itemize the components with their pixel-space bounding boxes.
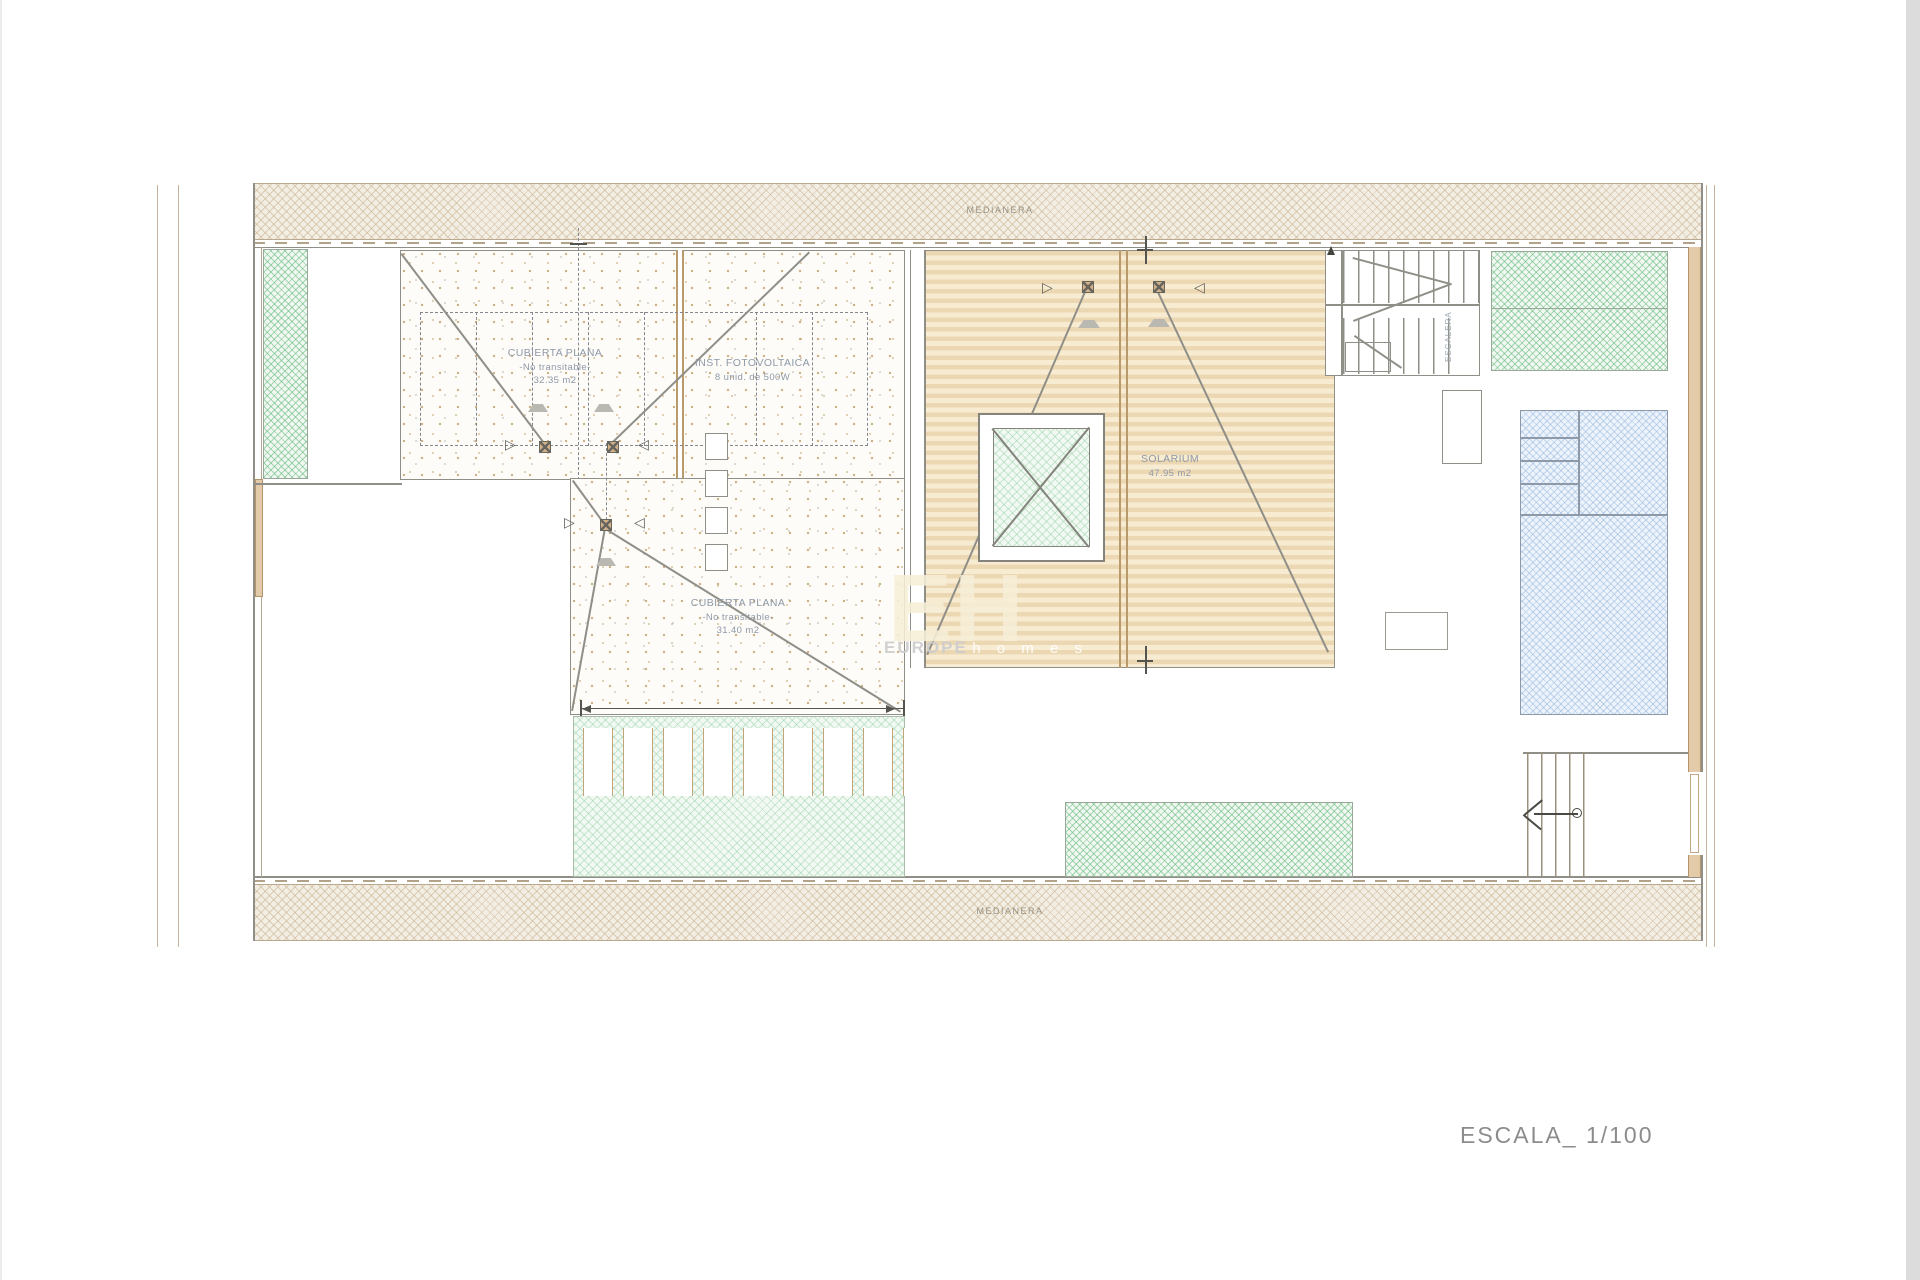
roof-axis-line [606, 443, 607, 530]
flat-roof-1-area: 32.35 m2 [455, 374, 655, 387]
roof-drain [607, 441, 619, 453]
planting-area-topright [1491, 251, 1668, 371]
top-wall-joint-dashes [253, 242, 1702, 244]
axis-tick [570, 243, 587, 245]
axis-tick [1137, 660, 1153, 662]
pv-subtitle: 8 unid. de 500W [660, 371, 845, 384]
solarium-area: 47.95 m2 [1095, 467, 1245, 480]
right-frame-line [1706, 185, 1707, 947]
pool-step-divider [1578, 410, 1580, 515]
planting-divider-line [1491, 308, 1668, 309]
rooftop-vent-box [705, 507, 728, 534]
solarium-label: SOLARIUM 47.95 m2 [1095, 452, 1245, 480]
stair-landing-line [1325, 304, 1480, 306]
rooftop-vent-box [705, 544, 728, 571]
stair-landing-box [1345, 342, 1391, 372]
watermark: EH EUROPE h o m e s [882, 566, 1102, 676]
scale-label: ESCALA_ 1/100 [1460, 1122, 1654, 1149]
slope-arrow-icon: ▷ [1042, 281, 1053, 295]
left-planting-strip [263, 249, 308, 479]
pv-label: INST. FOTOVOLTAICA 8 unid. de 500W [660, 356, 845, 384]
flat-roof-1-label: CUBIERTA PLANA -No transitable- 32.35 m2 [455, 346, 655, 387]
slope-arrow-icon: ▷ [564, 516, 575, 530]
bottom-wall-joint-dashes [253, 880, 1702, 882]
roof-drain [539, 441, 551, 453]
bottom-boundary-line [253, 876, 1702, 878]
flat-roof-1-subtitle: -No transitable- [455, 361, 655, 374]
watermark-brand: EUROPE [884, 638, 968, 657]
left-frame-line [178, 185, 179, 947]
stair-side-box [1442, 390, 1482, 464]
slope-arrow-icon: ◁ [634, 516, 645, 530]
pool-step-line [1520, 483, 1578, 485]
stair-treads [1343, 251, 1480, 303]
flat-roof-2-title: CUBIERTA PLANA [652, 596, 824, 611]
axis-tick [1137, 249, 1153, 251]
left-interior-wall-line [255, 483, 402, 485]
stair-flight-line [1341, 250, 1343, 376]
dimension-arrow-icon [582, 705, 591, 713]
left-frame-line [157, 185, 158, 947]
dimension-line [580, 708, 905, 709]
deck-anchor [1153, 281, 1165, 293]
dimension-tick [903, 700, 905, 716]
left-wall-stub [255, 479, 263, 597]
pool-step-line [1520, 437, 1578, 439]
flat-roof-2-label: CUBIERTA PLANA -No transitable- 31.40 m2 [652, 596, 824, 637]
pool-step-line [1520, 460, 1578, 462]
roof-drain [600, 519, 612, 531]
planting-area-bottom [1065, 802, 1353, 877]
right-frame-line [1714, 185, 1715, 947]
lower-stair-arrow-origin [1572, 808, 1582, 818]
flat-roof-2-subtitle: -No transitable- [652, 611, 824, 624]
sheet-left-edge [0, 0, 2, 1280]
floor-plan-sheet: MEDIANERA MEDIANERA ▷ ◁ CUBIERTA PLANA -… [0, 0, 1920, 1280]
party-wall-top-label: MEDIANERA [300, 205, 1700, 215]
dimension-arrow-icon [886, 705, 895, 713]
pergola-slats [583, 728, 905, 796]
slope-arrow-icon: ◁ [638, 438, 649, 452]
solarium-title: SOLARIUM [1095, 452, 1245, 467]
deck-anchor [1082, 281, 1094, 293]
rooftop-vent-box [705, 433, 728, 460]
watermark-brand-sub: h o m e s [972, 640, 1088, 657]
stair-direction-arrow-icon [1327, 246, 1335, 255]
pv-title: INST. FOTOVOLTAICA [660, 356, 845, 371]
right-masonry-wall [1688, 247, 1701, 772]
top-boundary-line [253, 247, 1702, 248]
flat-roof-1-title: CUBIERTA PLANA [455, 346, 655, 361]
right-wall-door-leaf [1690, 774, 1699, 853]
right-masonry-wall [1688, 855, 1701, 877]
staircase-text: ESCALERA [1444, 292, 1453, 362]
planter-box [1385, 612, 1448, 650]
sheet-right-edge [1906, 0, 1920, 1280]
slope-arrow-icon: ◁ [1194, 281, 1205, 295]
pool-shelf-line [1520, 514, 1668, 516]
slope-arrow-icon: ▷ [505, 438, 516, 452]
party-wall-bottom-label: MEDIANERA [310, 906, 1710, 916]
flat-roof-2-area: 31.40 m2 [652, 624, 824, 637]
rooftop-vent-box [705, 470, 728, 497]
pool [1520, 410, 1668, 715]
